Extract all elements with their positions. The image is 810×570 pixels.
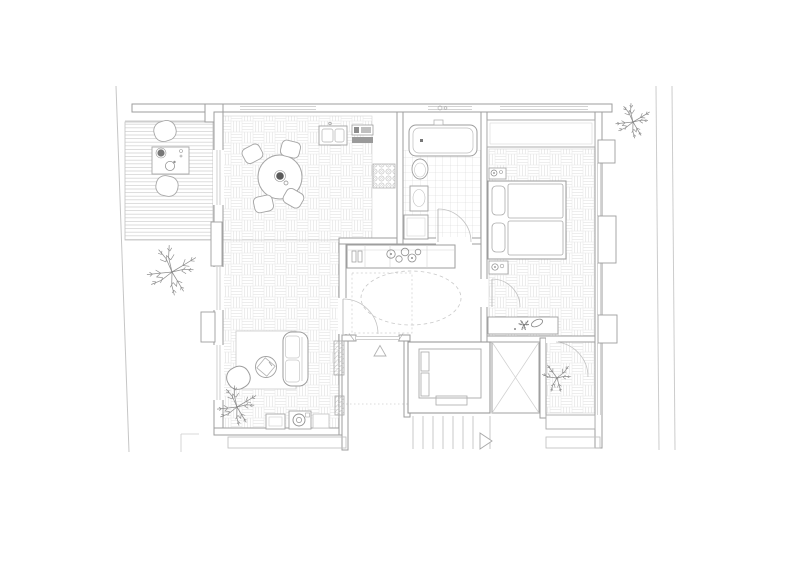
stove-knob-2 [411,257,413,259]
wall-cabinet-b [335,396,344,415]
dressing-balcony-ledge [546,415,595,429]
skylight-dotted-rect [352,273,412,333]
laundry-appliance-dark-a [354,127,359,133]
window-west-mid-gap [213,267,224,310]
wall-cabinet-a [334,341,344,375]
bathtub [409,125,477,156]
bathtub-faucet [434,120,443,125]
laundry-appliance-dark-b [361,127,371,133]
window-west-upper-gap [213,150,224,205]
window-west-lower-gap [213,345,224,400]
door-bedroom-gap [480,279,488,307]
nightstand-top [489,168,506,179]
terrace-kettle-dot [173,161,175,163]
lower-slab-edge-left [228,437,346,448]
wall-entry-right [399,335,410,341]
nightstand-bottom-lamp-dot [494,266,496,268]
stove-knob-1 [390,253,392,255]
elevator-car [419,349,481,398]
bathtub-drain [420,139,423,142]
bed-mattress-a [508,184,563,218]
wall-bath-west [397,112,403,244]
living-low-cabinet [313,414,329,428]
dining-centerpiece [276,172,284,180]
wall-pier-east-b [598,216,616,263]
wall-pier-east-a [598,140,615,163]
tree-top-right [616,103,650,138]
bed-pillow-b [492,223,505,252]
dressing-room-parquet [546,341,595,413]
bedroom-dresser [488,317,558,334]
door-living-kitchen-gap [338,298,347,334]
wall-pier-east-c [598,315,617,343]
street-edge-right-inner [656,86,659,450]
wall-pier-west-a [211,222,222,266]
tree-courtyard [147,245,196,295]
wall-dressing-west [540,338,546,418]
skylight-dashed-ellipse [361,271,461,325]
bed-mattress-b [508,221,563,255]
terrace-pot [157,149,164,156]
lower-slab-edge-right [546,437,600,448]
shower-mosaic-panel [373,164,395,188]
laundry-appliance-strip [352,137,373,143]
sofa [283,332,308,386]
dresser-dot [514,328,516,330]
door-bathroom-gap [436,237,472,245]
street-edge-right-outer [672,86,675,450]
nightstand-top-lamp-dot [493,172,495,174]
wall-bath-bedroom [481,112,487,342]
washer-unit [404,215,428,239]
bedroom-closet [487,120,595,147]
bed-pillow-a [492,186,505,215]
door-living-kitchen-arc [343,299,378,334]
wall-pier-west-b [201,312,215,342]
floor-plan-canvas [0,0,810,570]
floor-plan-drawing [0,0,810,570]
entry-arrow-marker [374,346,386,357]
terrace-kettle [165,161,174,170]
